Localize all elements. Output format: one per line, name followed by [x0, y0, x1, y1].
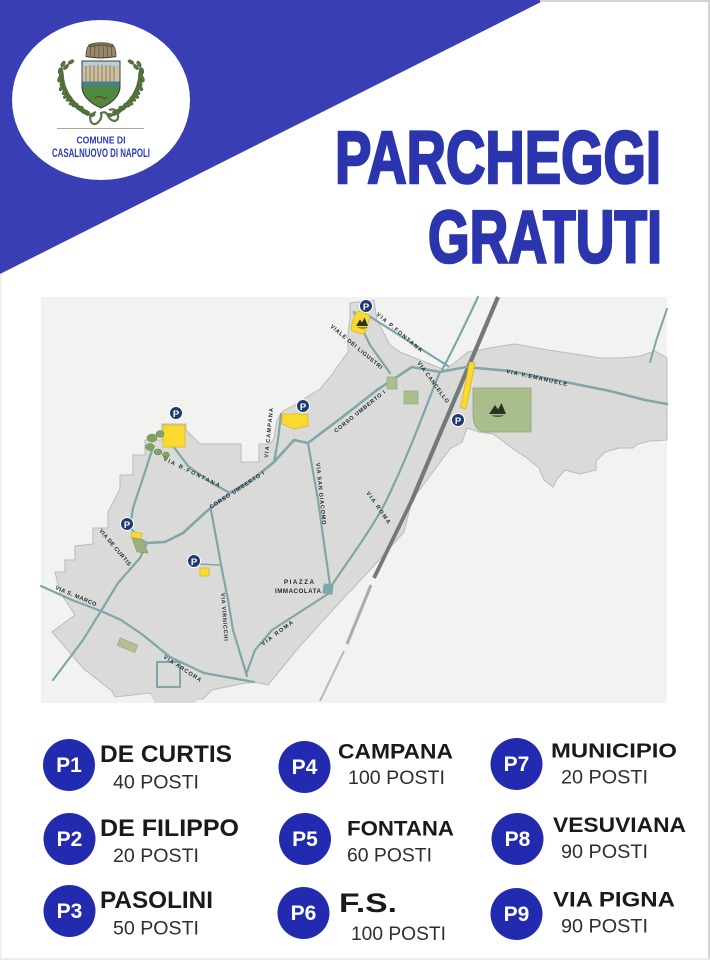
svg-text:CASALNUOVO DI NAPOLI: CASALNUOVO DI NAPOLI	[52, 147, 150, 160]
svg-text:60 POSTI: 60 POSTI	[347, 845, 432, 866]
svg-text:IMMACOLATA: IMMACOLATA	[275, 588, 322, 595]
svg-text:VIA PIGNA: VIA PIGNA	[553, 888, 676, 911]
svg-text:P6: P6	[291, 902, 317, 925]
svg-text:DE CURTIS: DE CURTIS	[100, 741, 232, 768]
svg-text:DE FILIPPO: DE FILIPPO	[100, 815, 239, 842]
svg-text:P8: P8	[505, 828, 531, 851]
svg-text:P: P	[455, 416, 462, 427]
svg-text:20 POSTI: 20 POSTI	[113, 845, 199, 866]
svg-text:P5: P5	[292, 828, 318, 851]
svg-text:P1: P1	[56, 754, 82, 777]
svg-text:40 POSTI: 40 POSTI	[113, 772, 199, 793]
svg-text:P2: P2	[57, 828, 83, 851]
svg-text:50 POSTI: 50 POSTI	[113, 918, 199, 939]
svg-text:P3: P3	[57, 900, 83, 923]
svg-text:P: P	[124, 520, 131, 531]
svg-text:100 POSTI: 100 POSTI	[348, 767, 445, 788]
svg-text:P4: P4	[292, 756, 318, 779]
svg-text:F.S.: F.S.	[339, 889, 397, 919]
svg-text:P: P	[363, 302, 370, 313]
svg-text:P7: P7	[504, 753, 530, 776]
svg-text:P: P	[173, 409, 180, 420]
svg-text:P: P	[300, 402, 307, 413]
svg-text:PASOLINI: PASOLINI	[100, 887, 213, 914]
svg-text:GRATUTI: GRATUTI	[428, 195, 662, 278]
svg-text:VESUVIANA: VESUVIANA	[553, 814, 687, 837]
svg-text:COMUNE DI: COMUNE DI	[77, 134, 126, 146]
svg-text:PARCHEGGI: PARCHEGGI	[335, 116, 661, 199]
svg-text:90 POSTI: 90 POSTI	[561, 916, 648, 937]
svg-text:P9: P9	[504, 903, 530, 926]
svg-text:P: P	[191, 557, 198, 568]
svg-text:FONTANA: FONTANA	[347, 817, 454, 840]
svg-text:MUNICIPIO: MUNICIPIO	[551, 739, 677, 761]
svg-text:CAMPANA: CAMPANA	[338, 740, 453, 763]
svg-text:20 POSTI: 20 POSTI	[561, 767, 648, 788]
svg-text:100 POSTI: 100 POSTI	[351, 923, 446, 944]
svg-text:90 POSTI: 90 POSTI	[561, 841, 648, 862]
